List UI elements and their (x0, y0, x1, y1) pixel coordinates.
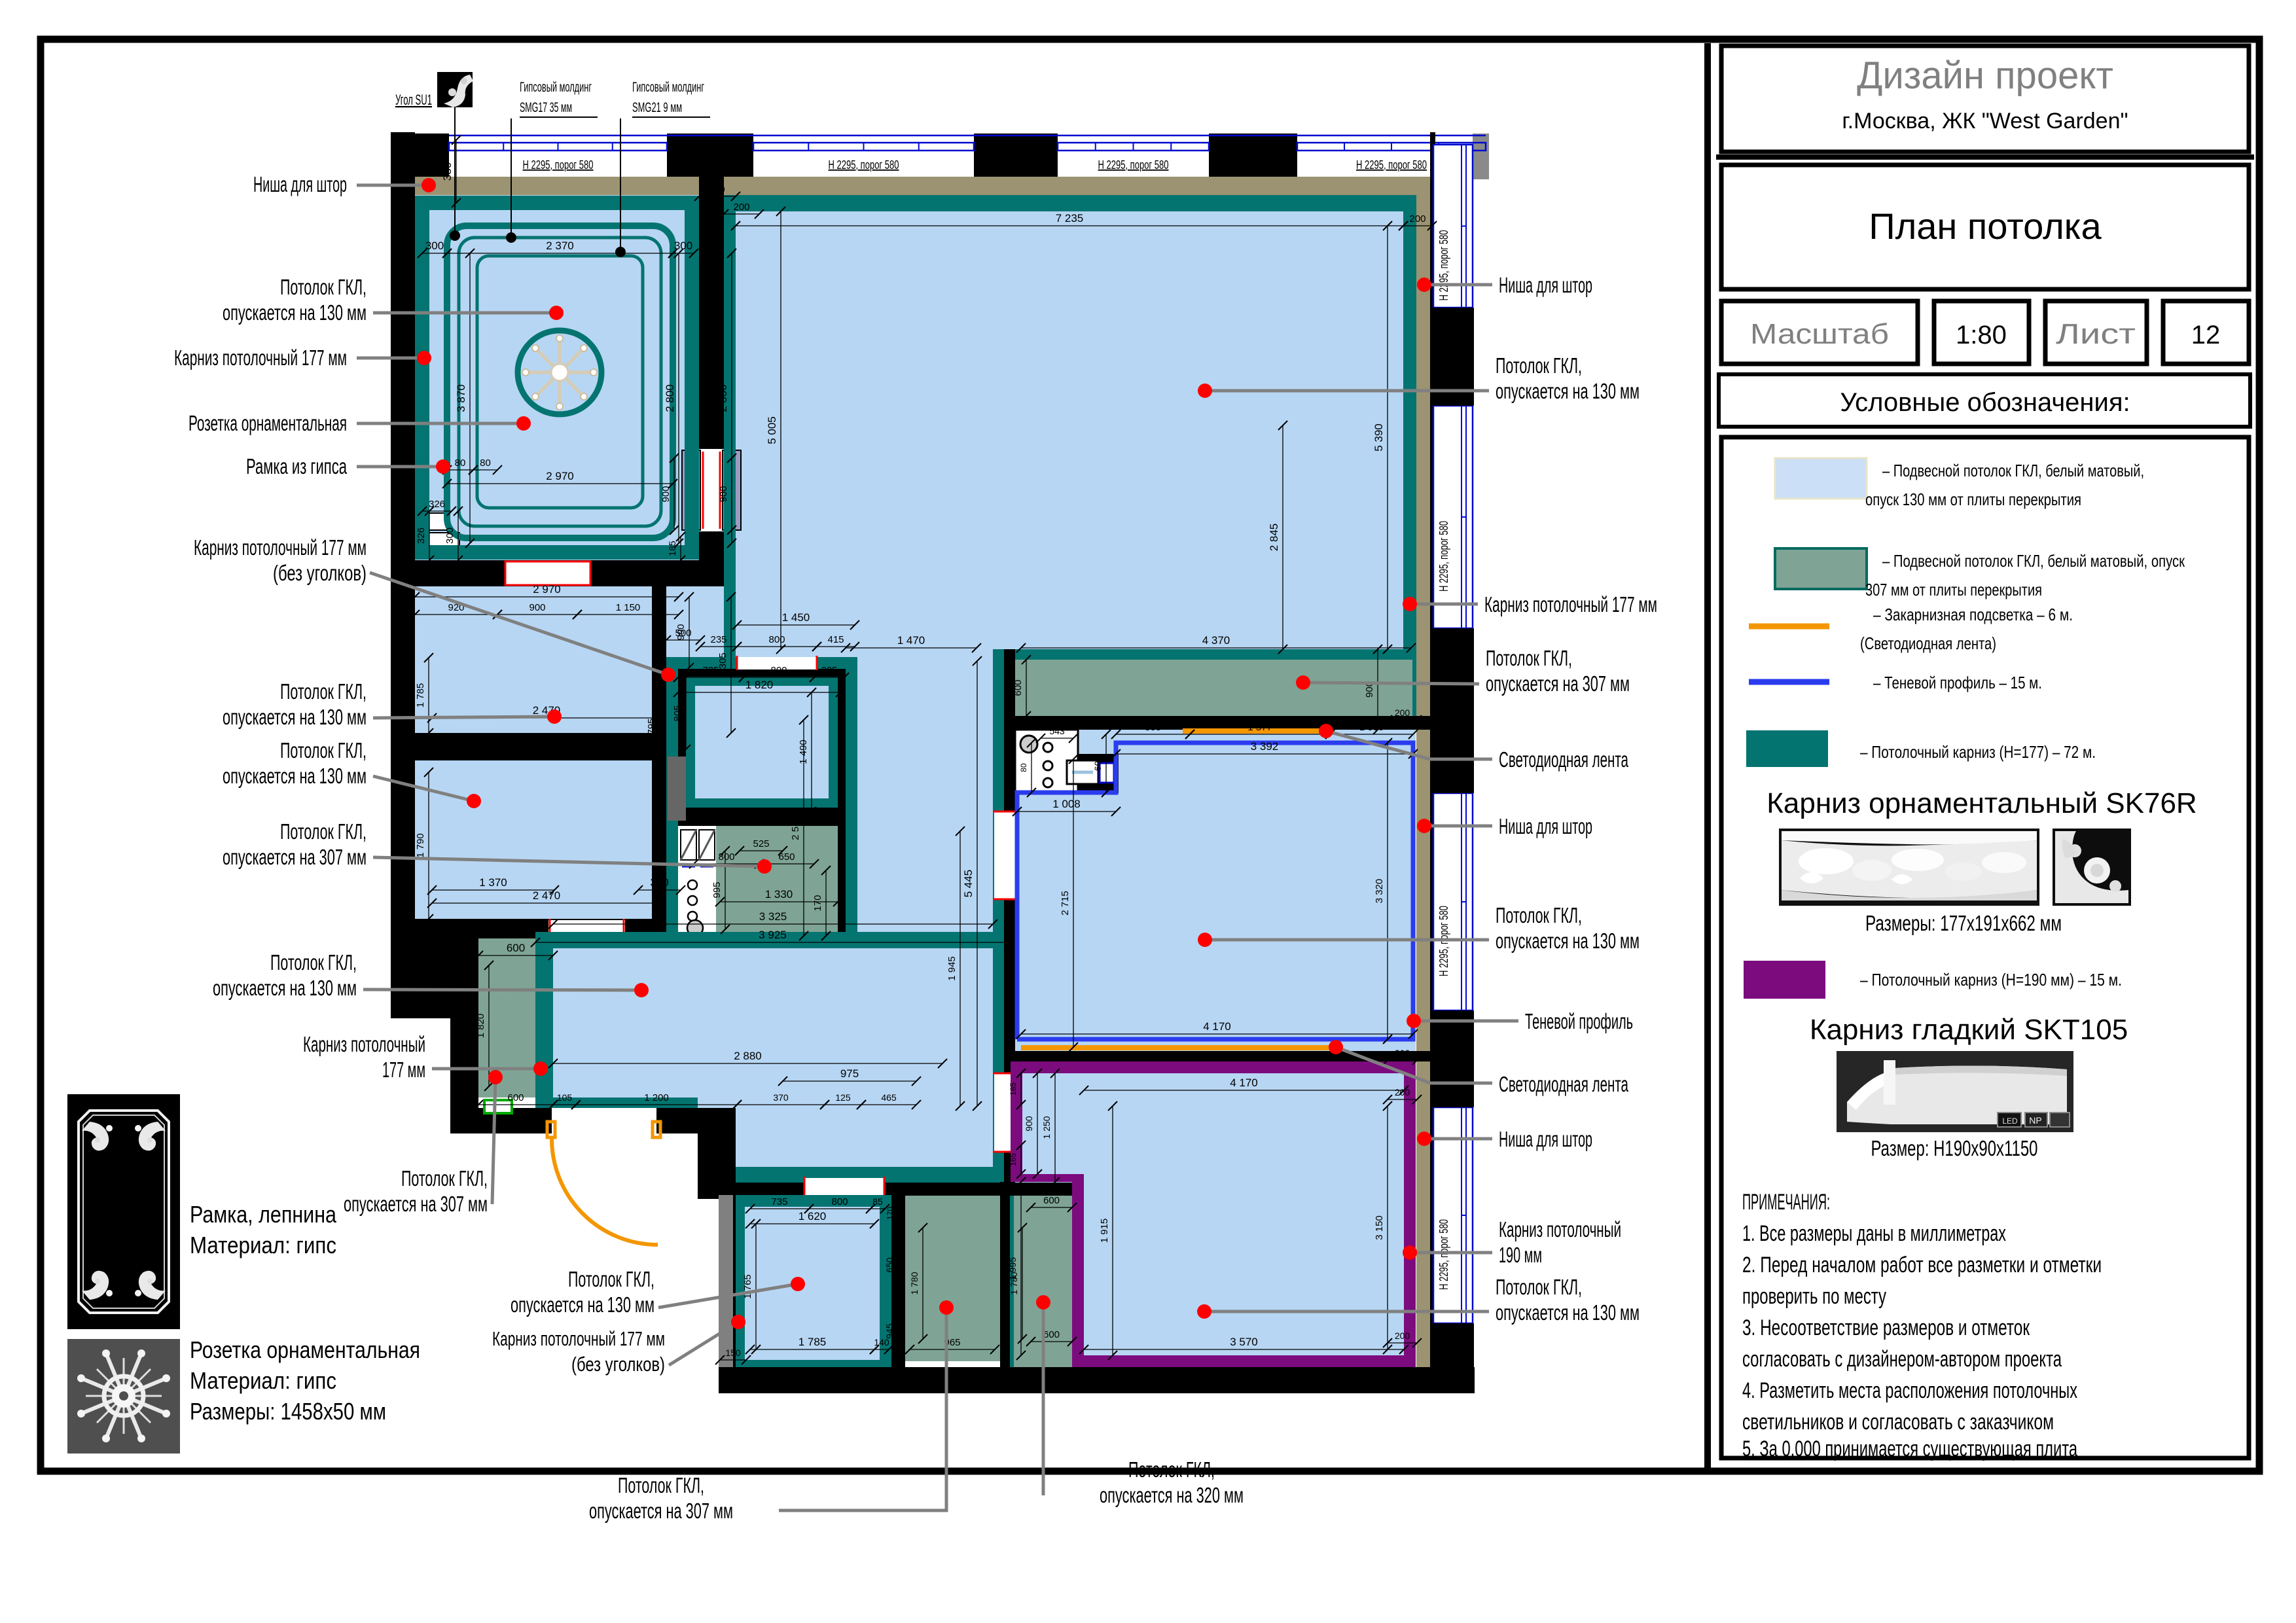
svg-text:200: 200 (1395, 1087, 1410, 1097)
svg-text:Карниз потолочный 177 мм: Карниз потолочный 177 мм (492, 1327, 665, 1350)
svg-text:Розетка орнаментальная: Розетка орнаментальная (190, 1336, 420, 1363)
svg-text:200: 200 (1395, 1048, 1410, 1058)
svg-text:Размер: H190х90х1150: Размер: H190х90х1150 (1871, 1136, 2038, 1160)
svg-text:5. За 0.000 принимается сущест: 5. За 0.000 принимается существующая пли… (1742, 1436, 2077, 1461)
svg-text:800: 800 (768, 634, 785, 645)
svg-text:Потолок ГКЛ,: Потолок ГКЛ, (280, 275, 367, 299)
svg-text:H 2295, порог 580: H 2295, порог 580 (1437, 1219, 1450, 1290)
svg-text:Гипсовый молдинг: Гипсовый молдинг (520, 80, 592, 95)
svg-text:согласовать с дизайнером-автор: согласовать с дизайнером-автором проекта (1742, 1347, 2062, 1372)
svg-text:300: 300 (674, 240, 692, 252)
svg-text:975: 975 (840, 1067, 859, 1080)
svg-text:415: 415 (827, 634, 844, 645)
svg-text:Угол SU1: Угол SU1 (395, 92, 432, 108)
svg-text:3 320: 3 320 (1374, 879, 1385, 904)
svg-text:Розетка орнаментальная: Розетка орнаментальная (188, 411, 347, 435)
svg-text:1 000: 1 000 (1359, 722, 1384, 733)
svg-text:600: 600 (507, 942, 525, 954)
svg-text:150: 150 (725, 1347, 741, 1358)
svg-text:370: 370 (773, 1092, 789, 1103)
svg-text:190 мм: 190 мм (1499, 1243, 1542, 1267)
svg-text:опускается на 320 мм: опускается на 320 мм (1100, 1483, 1244, 1507)
svg-text:(без уголков): (без уголков) (273, 561, 367, 585)
svg-text:Потолок ГКЛ,: Потолок ГКЛ, (401, 1166, 488, 1190)
svg-text:Материал: гипс: Материал: гипс (190, 1367, 336, 1394)
svg-text:945: 945 (884, 1323, 895, 1339)
svg-text:3 925: 3 925 (759, 929, 787, 941)
svg-text:LED: LED (2002, 1116, 2018, 1126)
svg-text:1 577: 1 577 (1247, 722, 1272, 733)
svg-text:800: 800 (770, 665, 787, 676)
svg-text:326: 326 (416, 527, 427, 544)
svg-text:светильников и согласовать с з: светильников и согласовать с заказчиком (1742, 1410, 2054, 1435)
svg-text:H 2295, порог 580: H 2295, порог 580 (1356, 158, 1427, 171)
svg-text:опускается на 130 мм: опускается на 130 мм (1496, 1300, 1640, 1325)
svg-text:1 008: 1 008 (1052, 798, 1081, 810)
svg-text:605: 605 (1092, 756, 1103, 772)
svg-text:4. Разметить места расположени: 4. Разметить места расположения потолочн… (1742, 1378, 2077, 1403)
svg-text:7 235: 7 235 (1056, 212, 1084, 224)
svg-text:525: 525 (753, 838, 769, 849)
svg-text:Ниша для штор: Ниша для штор (1499, 273, 1592, 297)
svg-text:Потолок ГКЛ,: Потолок ГКЛ, (280, 819, 367, 844)
svg-text:990: 990 (675, 624, 687, 640)
svg-text:H 2295, порог 580: H 2295, порог 580 (523, 158, 594, 171)
svg-text:5 005: 5 005 (766, 416, 778, 444)
svg-text:795: 795 (646, 718, 657, 734)
svg-text:326: 326 (429, 499, 445, 510)
svg-text:опускается на 307 мм: опускается на 307 мм (223, 845, 367, 869)
svg-text:Потолок ГКЛ,: Потолок ГКЛ, (280, 738, 367, 762)
svg-text:проверить по месту: проверить по месту (1742, 1284, 1886, 1309)
svg-text:3 150: 3 150 (1374, 1215, 1385, 1240)
svg-text:3 870: 3 870 (455, 384, 467, 412)
svg-text:– Потолочный карниз (H=190 мм): – Потолочный карниз (H=190 мм) – 15 м. (1860, 970, 2122, 990)
svg-text:3. Несоответствие размеров и о: 3. Несоответствие размеров и отметок (1742, 1315, 2030, 1340)
svg-text:2 845: 2 845 (1268, 524, 1280, 552)
svg-text:2. Перед началом работ все раз: 2. Перед началом работ все разметки и от… (1742, 1253, 2102, 1277)
svg-text:– Подвесной потолок ГКЛ, белый: – Подвесной потолок ГКЛ, белый матовый, … (1882, 551, 2185, 571)
svg-text:1 305: 1 305 (717, 652, 728, 677)
svg-text:1. Все размеры даны в миллимет: 1. Все размеры даны в миллиметрах (1742, 1221, 2006, 1246)
svg-text:H 2295, порог 580: H 2295, порог 580 (1437, 521, 1450, 592)
svg-text:Светодиодная лента: Светодиодная лента (1499, 1072, 1628, 1096)
svg-text:735: 735 (702, 665, 719, 676)
svg-text:NP: NP (2029, 1115, 2041, 1126)
svg-text:170: 170 (886, 1207, 895, 1220)
svg-text:1 915: 1 915 (1099, 1219, 1110, 1243)
svg-text:опускается на 307 мм: опускается на 307 мм (1486, 671, 1630, 696)
svg-text:Размеры: 177х191х662 мм: Размеры: 177х191х662 мм (1865, 911, 2062, 935)
svg-text:H 2295, порог 580: H 2295, порог 580 (1098, 158, 1169, 171)
svg-text:1 620: 1 620 (798, 1210, 827, 1222)
svg-text:12: 12 (2191, 321, 2221, 349)
svg-text:SMG17 35 мм: SMG17 35 мм (520, 100, 572, 115)
svg-text:2 370: 2 370 (546, 240, 574, 252)
svg-text:1 820: 1 820 (475, 1014, 486, 1039)
svg-text:Потолок ГКЛ,: Потолок ГКЛ, (1496, 353, 1582, 378)
svg-text:1 820: 1 820 (745, 679, 774, 691)
svg-text:Потолок ГКЛ,: Потолок ГКЛ, (1496, 1275, 1582, 1299)
svg-text:H 2295, порог 580: H 2295, порог 580 (829, 158, 899, 171)
svg-text:Потолок ГКЛ,: Потолок ГКЛ, (1486, 646, 1572, 670)
svg-text:Ниша для штор: Ниша для штор (1499, 1127, 1592, 1151)
svg-text:Потолок ГКЛ,: Потолок ГКЛ, (568, 1267, 655, 1291)
svg-text:Теневой профиль: Теневой профиль (1525, 1009, 1633, 1033)
svg-text:307 мм от плиты перекрытия: 307 мм от плиты перекрытия (1865, 580, 2042, 599)
svg-text:опускается на 130 мм: опускается на 130 мм (511, 1293, 655, 1317)
svg-text:2 880: 2 880 (734, 1050, 762, 1062)
svg-text:1 785: 1 785 (798, 1336, 827, 1348)
svg-text:2 970: 2 970 (533, 583, 561, 596)
svg-text:опускается на 130 мм: опускается на 130 мм (213, 976, 357, 1000)
svg-text:(Светодиодная лента): (Светодиодная лента) (1860, 633, 1996, 653)
svg-text:330: 330 (441, 162, 454, 181)
svg-text:Карниз потолочный 177 мм: Карниз потолочный 177 мм (194, 535, 367, 560)
svg-text:995: 995 (711, 882, 723, 898)
svg-text:1 765: 1 765 (742, 1274, 753, 1299)
svg-text:Рамка из гипса: Рамка из гипса (246, 454, 347, 478)
svg-text:1 250: 1 250 (1041, 1116, 1052, 1139)
svg-text:опуск 130 мм от плиты перекрыт: опуск 130 мм от плиты перекрытия (1865, 490, 2081, 509)
svg-text:опускается на 130 мм: опускается на 130 мм (1496, 379, 1640, 403)
svg-text:600: 600 (1043, 1329, 1060, 1340)
svg-text:1 450: 1 450 (782, 611, 810, 624)
svg-text:200: 200 (1395, 707, 1410, 718)
svg-text:2 970: 2 970 (546, 470, 574, 482)
svg-text:Ниша для штор: Ниша для штор (253, 172, 347, 196)
svg-text:опускается на 130 мм: опускается на 130 мм (223, 300, 367, 325)
svg-text:опускается на 307 мм: опускается на 307 мм (344, 1192, 488, 1216)
svg-text:900: 900 (660, 486, 672, 502)
svg-text:Лист: Лист (2056, 318, 2136, 350)
svg-text:г.Москва, ЖК "West Garden": г.Москва, ЖК "West Garden" (1842, 109, 2128, 134)
svg-text:1 370: 1 370 (479, 876, 507, 889)
svg-text:Потолок ГКЛ,: Потолок ГКЛ, (618, 1473, 704, 1497)
svg-text:80: 80 (480, 457, 491, 469)
svg-text:900: 900 (529, 602, 545, 613)
svg-text:80: 80 (455, 457, 466, 469)
svg-text:900: 900 (1024, 1116, 1034, 1132)
svg-text:185: 185 (667, 541, 677, 556)
svg-text:4 370: 4 370 (1202, 634, 1230, 647)
svg-text:650: 650 (884, 1257, 895, 1273)
svg-text:2 800: 2 800 (664, 384, 676, 412)
svg-text:– Закарнизная подсветка – 6 м.: – Закарнизная подсветка – 6 м. (1873, 605, 2073, 624)
svg-text:4 170: 4 170 (1230, 1077, 1258, 1089)
svg-text:Потолок ГКЛ,: Потолок ГКЛ, (1128, 1457, 1215, 1482)
svg-text:1 780: 1 780 (1009, 1272, 1019, 1294)
svg-text:600: 600 (1013, 679, 1024, 696)
svg-text:Условные обозначения:: Условные обозначения: (1840, 388, 2130, 417)
svg-text:1 785: 1 785 (415, 683, 426, 708)
svg-text:Карниз потолочный 177 мм: Карниз потолочный 177 мм (174, 346, 347, 370)
svg-text:1 790: 1 790 (415, 833, 426, 858)
svg-text:Светодиодная лента: Светодиодная лента (1499, 747, 1628, 772)
svg-text:1 330: 1 330 (765, 888, 793, 901)
svg-text:235: 235 (710, 634, 726, 645)
svg-text:543: 543 (1049, 726, 1065, 736)
svg-text:185: 185 (1009, 1082, 1018, 1096)
svg-text:800: 800 (1145, 722, 1161, 733)
svg-text:805: 805 (672, 705, 683, 721)
svg-text:опускается на 130 мм: опускается на 130 мм (1496, 929, 1640, 953)
svg-text:600: 600 (1043, 1195, 1060, 1206)
svg-text:5 445: 5 445 (962, 870, 975, 898)
svg-text:2 585: 2 585 (790, 815, 801, 840)
svg-text:Рамка, лепнина: Рамка, лепнина (190, 1201, 337, 1228)
svg-text:1 780: 1 780 (909, 1272, 920, 1294)
svg-text:Размеры: 1458х50 мм: Размеры: 1458х50 мм (190, 1398, 386, 1425)
svg-text:3 570: 3 570 (1230, 1336, 1258, 1348)
svg-text:ПРИМЕЧАНИЯ:: ПРИМЕЧАНИЯ: (1742, 1190, 1830, 1215)
svg-text:опускается на 130 мм: опускается на 130 мм (223, 705, 367, 729)
svg-text:300: 300 (650, 876, 668, 889)
svg-text:4 170: 4 170 (1203, 1020, 1231, 1033)
svg-text:– Потолочный карниз (H=177) –: – Потолочный карниз (H=177) – 72 м. (1860, 742, 2096, 762)
svg-text:200: 200 (1409, 213, 1426, 224)
svg-text:Ниша для штор: Ниша для штор (1499, 814, 1592, 838)
svg-text:H 2295, порог 580: H 2295, порог 580 (1437, 230, 1450, 301)
svg-text:3 392: 3 392 (1251, 740, 1279, 753)
svg-text:165: 165 (1009, 1153, 1018, 1166)
svg-text:80: 80 (1019, 763, 1028, 772)
svg-text:5 390: 5 390 (1372, 423, 1385, 452)
svg-text:Потолок ГКЛ,: Потолок ГКЛ, (280, 679, 367, 704)
svg-text:Карниз потолочный: Карниз потолочный (1499, 1217, 1621, 1241)
svg-text:900: 900 (718, 486, 729, 502)
svg-text:опускается на 130 мм: опускается на 130 мм (223, 764, 367, 788)
svg-text:2 470: 2 470 (533, 889, 561, 902)
svg-text:– Теневой профиль – 15 м.: – Теневой профиль – 15 м. (1873, 673, 2042, 692)
svg-text:(без уголков): (без уголков) (571, 1353, 665, 1376)
svg-text:1:80: 1:80 (1956, 321, 2007, 349)
svg-text:Карниз потолочный: Карниз потолочный (303, 1032, 425, 1056)
svg-text:1 200: 1 200 (644, 1092, 669, 1103)
svg-text:177 мм: 177 мм (382, 1058, 425, 1082)
svg-text:– Подвесной потолок ГКЛ, белый: – Подвесной потолок ГКЛ, белый матовый, (1882, 461, 2144, 480)
svg-text:опускается на 307 мм: опускается на 307 мм (589, 1499, 733, 1523)
svg-text:600: 600 (507, 1092, 524, 1103)
svg-text:Масштаб: Масштаб (1750, 318, 1889, 350)
svg-text:План потолка: План потолка (1869, 205, 2102, 247)
svg-text:Потолок ГКЛ,: Потолок ГКЛ, (1496, 903, 1582, 927)
svg-text:200: 200 (709, 184, 725, 194)
svg-text:285: 285 (821, 665, 837, 676)
svg-text:2 715: 2 715 (1060, 891, 1071, 916)
svg-text:800: 800 (831, 1196, 848, 1207)
svg-text:200: 200 (1395, 1330, 1410, 1341)
svg-text:735: 735 (771, 1196, 787, 1207)
svg-text:800: 800 (718, 851, 734, 863)
svg-text:300: 300 (425, 240, 444, 252)
svg-text:105: 105 (557, 1092, 573, 1103)
svg-text:85: 85 (872, 1196, 883, 1207)
svg-text:300: 300 (444, 527, 456, 544)
svg-text:Дизайн проект: Дизайн проект (1857, 54, 2113, 97)
svg-text:Гипсовый молдинг: Гипсовый молдинг (632, 80, 704, 95)
svg-text:170: 170 (812, 895, 823, 911)
svg-text:Материал: гипс: Материал: гипс (190, 1232, 336, 1258)
svg-text:3 325: 3 325 (759, 910, 787, 923)
svg-text:465: 465 (881, 1092, 897, 1103)
svg-text:Потолок ГКЛ,: Потолок ГКЛ, (270, 950, 357, 974)
svg-text:1 150: 1 150 (616, 602, 641, 613)
svg-text:Карниз орнаментальный SK76R: Карниз орнаментальный SK76R (1767, 787, 2197, 819)
svg-text:2 800: 2 800 (717, 384, 729, 412)
svg-text:1 470: 1 470 (897, 634, 925, 647)
svg-text:Карниз гладкий SKT105: Карниз гладкий SKT105 (1810, 1014, 2128, 1046)
svg-text:SMG21 9 мм: SMG21 9 мм (632, 100, 682, 115)
svg-text:Карниз потолочный 177 мм: Карниз потолочный 177 мм (1484, 592, 1657, 616)
svg-text:200: 200 (733, 202, 749, 213)
svg-text:125: 125 (835, 1092, 851, 1103)
svg-text:1 945: 1 945 (946, 956, 958, 981)
